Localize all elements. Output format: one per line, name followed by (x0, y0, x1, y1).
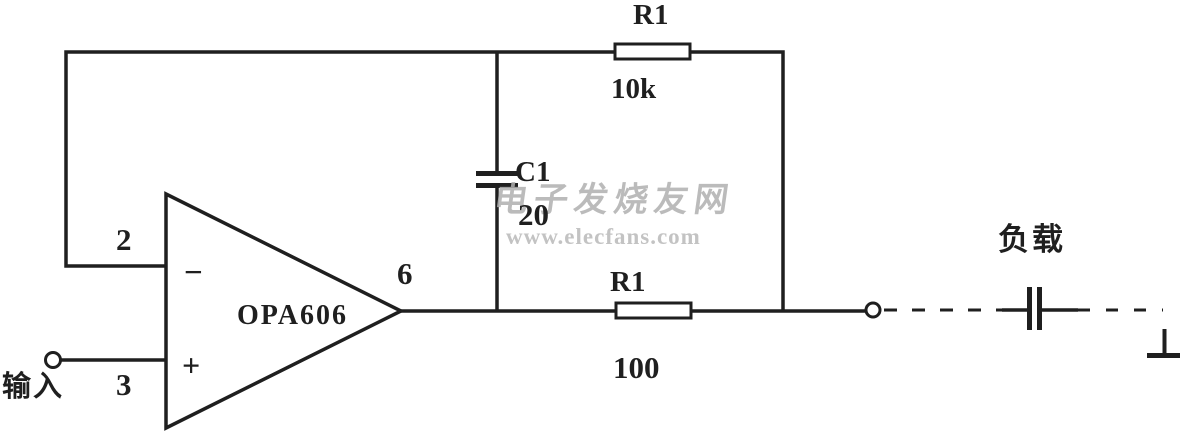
feedback-resistor-value-label: 10k (611, 75, 656, 104)
opamp-part-number-label: OPA606 (237, 302, 348, 330)
output-terminal-circle (866, 303, 880, 317)
opamp-minus-sign: − (184, 257, 203, 290)
load-label: 负载 (998, 224, 1066, 255)
series-resistor-ref-label: R1 (610, 268, 645, 297)
opamp-pin6-label: 6 (397, 258, 413, 289)
feedback-resistor-ref-label: R1 (633, 1, 668, 30)
feedback-resistor-body (615, 44, 690, 59)
load-capacitor-plate-right (1037, 287, 1042, 330)
opamp-plus-sign: + (182, 349, 200, 381)
input-terminal-label: 输入 (2, 373, 64, 402)
schematic-canvas: 电子发烧友网 www.elecfans.com R1 10k C1 20 R1 … (0, 0, 1180, 432)
feedback-capacitor-value-label: 20 (518, 199, 549, 230)
series-resistor-value-label: 100 (613, 352, 660, 383)
load-capacitor-plate-left (1027, 287, 1032, 330)
c1-capacitor-plate-top (476, 171, 518, 176)
opamp-pin2-label: 2 (116, 224, 132, 255)
feedback-capacitor-ref-label: C1 (515, 158, 550, 187)
input-terminal-circle (46, 353, 61, 368)
opamp-pin3-label: 3 (116, 369, 132, 400)
series-resistor-body (616, 303, 691, 318)
